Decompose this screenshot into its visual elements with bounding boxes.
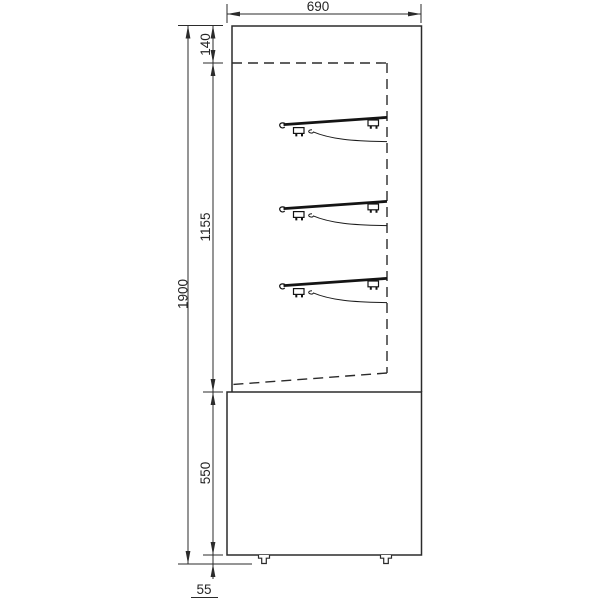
base-height-label: 550: [198, 462, 213, 485]
overall-arrow-bottom: [186, 551, 191, 564]
top-panel-label: 140: [198, 33, 213, 56]
width-label: 690: [307, 0, 330, 14]
chain-arrow-550-down: [211, 542, 216, 555]
cabinet: [227, 26, 422, 564]
overall-arrow-top: [186, 26, 191, 39]
drawing-canvas: 690 1900 140 1155 550 55: [0, 0, 600, 600]
overall-height-label: 1900: [176, 279, 191, 309]
width-arrow-right: [408, 12, 421, 17]
chain-arrow-1155-down: [211, 379, 216, 392]
cabinet-upper-body: [232, 26, 422, 392]
chain-arrow-55-up: [211, 564, 216, 577]
display-opening-label: 1155: [198, 212, 213, 241]
interior-bottom-dashed-line: [233, 373, 387, 385]
shelf-3: [280, 278, 387, 302]
chain-arrow-1155-up: [211, 63, 216, 76]
width-arrow-left: [227, 12, 240, 17]
dimension-chain: 140 1155 550 55: [178, 26, 252, 598]
foot-right: [381, 555, 392, 564]
cabinet-base: [227, 392, 422, 555]
feet-height-label: 55: [196, 582, 211, 597]
dimension-width: 690: [227, 0, 421, 23]
foot-left: [259, 555, 270, 564]
display-interior-outline: [232, 63, 387, 385]
chain-arrow-550-up: [211, 392, 216, 405]
shelf-2: [280, 201, 387, 225]
shelf-1: [280, 117, 387, 141]
dimension-overall-height: 1900: [176, 26, 191, 565]
technical-drawing: 690 1900 140 1155 550 55: [0, 0, 600, 600]
